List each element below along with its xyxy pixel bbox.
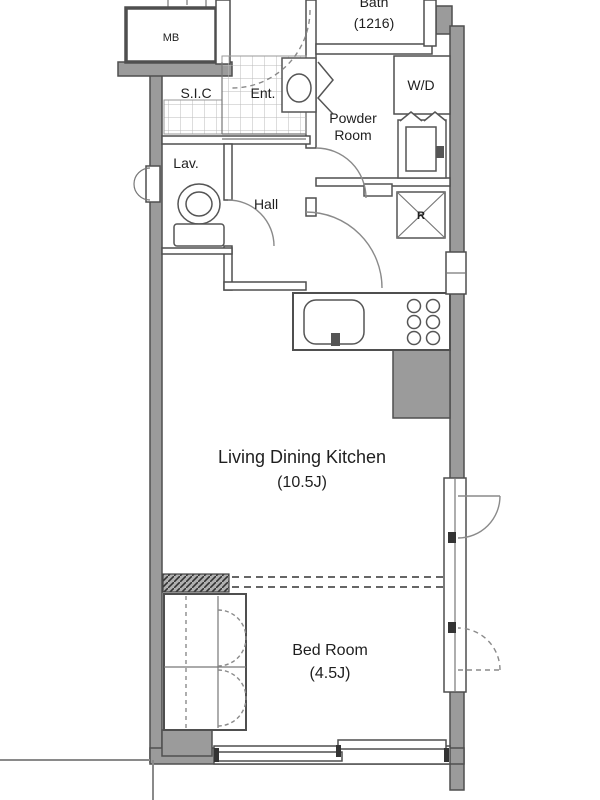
lavatory-label: Lav. bbox=[173, 155, 198, 171]
bedroom-window-pane-left bbox=[218, 752, 342, 761]
powder-room-door-swing bbox=[316, 148, 366, 198]
bedroom-label: Bed Room bbox=[292, 642, 368, 659]
upper-horizontal-wall bbox=[162, 136, 310, 144]
lavatory-bottom-wall bbox=[162, 248, 232, 254]
window-frame-tick-mid bbox=[336, 745, 341, 757]
washing-machine bbox=[406, 127, 436, 171]
faucet-icon bbox=[331, 333, 340, 346]
powder-room-label-2: Room bbox=[334, 127, 371, 143]
meter-box-label: MB bbox=[163, 32, 180, 44]
floor-plan-drawing: Bath (1216) MB S.I.C Ent. W/D Powder Roo… bbox=[0, 0, 600, 800]
room-partition bbox=[163, 574, 448, 592]
bedroom-window-pane-right bbox=[338, 740, 446, 749]
washer-dryer-label: W/D bbox=[407, 77, 434, 93]
window-frame-tick-left bbox=[214, 748, 219, 762]
window-frame-tick-right bbox=[444, 748, 449, 762]
closet bbox=[164, 594, 246, 730]
bedroom-size-label: (4.5J) bbox=[310, 665, 351, 682]
ldk-door-swing bbox=[306, 212, 382, 288]
sliding-partition-dashes bbox=[232, 577, 448, 587]
bath-folding-door-icon bbox=[318, 62, 333, 114]
shoe-closet-label: S.I.C bbox=[180, 85, 211, 101]
floor-plan-page: Bath (1216) MB S.I.C Ent. W/D Powder Roo… bbox=[0, 0, 600, 800]
window-latch-bottom bbox=[448, 622, 456, 633]
balcony-lines bbox=[0, 760, 153, 800]
bath-bottom-wall bbox=[316, 44, 432, 54]
washbasin-bowl bbox=[287, 74, 311, 102]
partition-hatch-block bbox=[163, 574, 229, 592]
meter-box-wall-band bbox=[118, 62, 232, 76]
lavatory-window bbox=[146, 166, 160, 202]
small-counter bbox=[364, 184, 392, 196]
powder-room-label-1: Powder bbox=[329, 110, 377, 126]
pipe-space-block bbox=[393, 348, 450, 418]
balcony-boundary bbox=[0, 760, 153, 800]
hall-label: Hall bbox=[254, 196, 278, 212]
hall-wall-stub bbox=[306, 198, 316, 216]
toilet-bowl-inner bbox=[186, 192, 212, 216]
washer-tap-icon bbox=[436, 146, 444, 158]
bath-right-wall bbox=[424, 0, 436, 46]
ldk-label: Living Dining Kitchen bbox=[218, 447, 386, 467]
bath-size-label: (1216) bbox=[354, 15, 394, 31]
ldk-size-label: (10.5J) bbox=[277, 474, 327, 491]
entrance-label: Ent. bbox=[251, 85, 276, 101]
closet-niche-wall bbox=[162, 730, 212, 756]
entrance-left-wall bbox=[216, 0, 230, 64]
refrigerator-label: R bbox=[417, 210, 425, 222]
hall-bottom-wall bbox=[224, 282, 306, 290]
shoe-closet-tiles bbox=[164, 100, 222, 134]
bath-label: Bath bbox=[360, 0, 389, 10]
window-latch-top bbox=[448, 532, 456, 543]
toilet-tank-icon bbox=[174, 224, 224, 246]
lavatory-right-wall-upper bbox=[224, 144, 232, 200]
